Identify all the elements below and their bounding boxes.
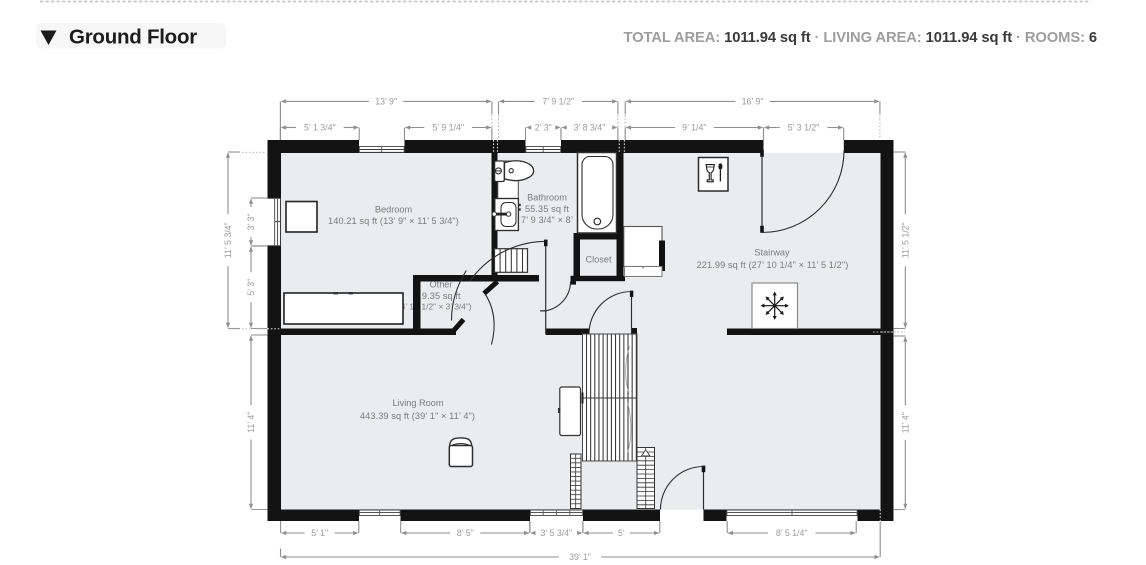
svg-text:5’ 9 1/4": 5’ 9 1/4"	[432, 122, 464, 132]
svg-text:9.35 sq ft: 9.35 sq ft	[422, 291, 461, 301]
svg-text:8’ 5 1/4": 8’ 5 1/4"	[776, 528, 808, 538]
svg-text:Bathroom: Bathroom	[527, 193, 567, 203]
svg-text:7’ 9 3/4" × 8’: 7’ 9 3/4" × 8’	[521, 215, 573, 225]
svg-text:Ground Floor: Ground Floor	[69, 26, 197, 49]
svg-text:5’ 1 3/4": 5’ 1 3/4"	[304, 122, 336, 132]
svg-text:13’ 9": 13’ 9"	[375, 96, 397, 106]
svg-text:11’ 4": 11’ 4"	[246, 412, 256, 433]
svg-text:3’ 5 3/4": 3’ 5 3/4"	[541, 528, 573, 538]
svg-text:5’ 3": 5’ 3"	[246, 279, 256, 296]
svg-text:5’: 5’	[618, 528, 625, 538]
svg-text:3’ 8 3/4": 3’ 8 3/4"	[574, 122, 606, 132]
svg-text:Other: Other	[430, 280, 453, 290]
svg-text:11’ 5 3/4": 11’ 5 3/4"	[223, 222, 233, 258]
svg-text:5’ 1": 5’ 1"	[311, 528, 328, 538]
svg-text:221.99 sq ft (27’ 10 1/4" × 11: 221.99 sq ft (27’ 10 1/4" × 11’ 5 1/2")	[697, 260, 849, 270]
svg-text:3’ 3": 3’ 3"	[246, 214, 256, 231]
svg-text:140.21 sq ft (13’ 9" × 11’ 5 3: 140.21 sq ft (13’ 9" × 11’ 5 3/4")	[328, 216, 459, 226]
svg-text:Bedroom: Bedroom	[375, 205, 413, 215]
svg-text:2’ 3": 2’ 3"	[535, 122, 552, 132]
svg-text:Living Room: Living Room	[392, 398, 443, 408]
svg-text:9’ 1/4": 9’ 1/4"	[682, 122, 706, 132]
svg-text:11’ 4": 11’ 4"	[900, 412, 910, 433]
svg-text:TOTAL AREA: 1011.94 sq ft · LI: TOTAL AREA: 1011.94 sq ft · LIVING AREA:…	[623, 30, 1097, 46]
svg-text:5’ 3 1/2": 5’ 3 1/2"	[788, 122, 820, 132]
svg-text:39’ 1": 39’ 1"	[569, 552, 591, 562]
svg-text:16’ 9": 16’ 9"	[742, 96, 764, 106]
svg-text:443.39 sq ft (39’ 1" × 11’ 4"): 443.39 sq ft (39’ 1" × 11’ 4")	[360, 411, 475, 421]
svg-text:Stairway: Stairway	[754, 247, 790, 257]
svg-text:8’ 5": 8’ 5"	[457, 528, 474, 538]
svg-text:11’ 5 1/2": 11’ 5 1/2"	[900, 222, 910, 258]
svg-text:7’ 9 1/2": 7’ 9 1/2"	[542, 96, 574, 106]
svg-text:55.35 sq ft: 55.35 sq ft	[525, 204, 569, 214]
svg-text:Closet: Closet	[585, 254, 611, 264]
svg-text:1/2" × 3’ 3/4"): 1/2" × 3’ 3/4")	[422, 302, 472, 312]
